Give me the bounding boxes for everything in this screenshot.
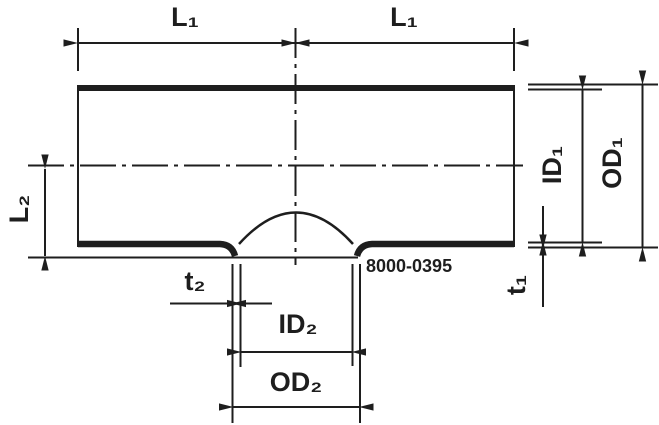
tee-fitting-diagram: L₁ L₁ L₂ ID₁ OD₁ t₁ t₂ ID₂ [0,0,659,425]
dim-t1: t₁ [501,206,543,307]
drawing-canvas: L₁ L₁ L₂ ID₁ OD₁ t₁ t₂ ID₂ [0,0,659,425]
dim-label-od1: OD₁ [597,137,627,189]
dim-t2: t₂ [170,266,272,304]
dim-id2: ID₂ [242,309,352,352]
dim-l2: L₂ [4,169,45,256]
dim-label-id2: ID₂ [279,309,318,339]
dim-label-t2: t₂ [185,266,206,296]
dim-label-l1-left: L₁ [171,2,199,32]
dim-l1-right: L₁ [296,2,514,71]
dim-id1: ID₁ [528,90,602,243]
dim-od2: OD₂ [234,367,360,407]
dim-label-t1: t₁ [501,275,531,295]
dim-l1-left: L₁ [78,2,295,71]
run-pipe-bottom-wall-left [78,244,235,256]
dim-label-id1: ID₁ [537,146,567,184]
part-number: 8000-0395 [366,256,452,276]
dim-label-l1-right: L₁ [390,2,418,32]
dim-label-l2: L₂ [4,195,34,224]
dim-label-od2: OD₂ [270,367,323,397]
centerlines [28,28,523,265]
run-pipe-bottom-wall-right [357,244,514,256]
